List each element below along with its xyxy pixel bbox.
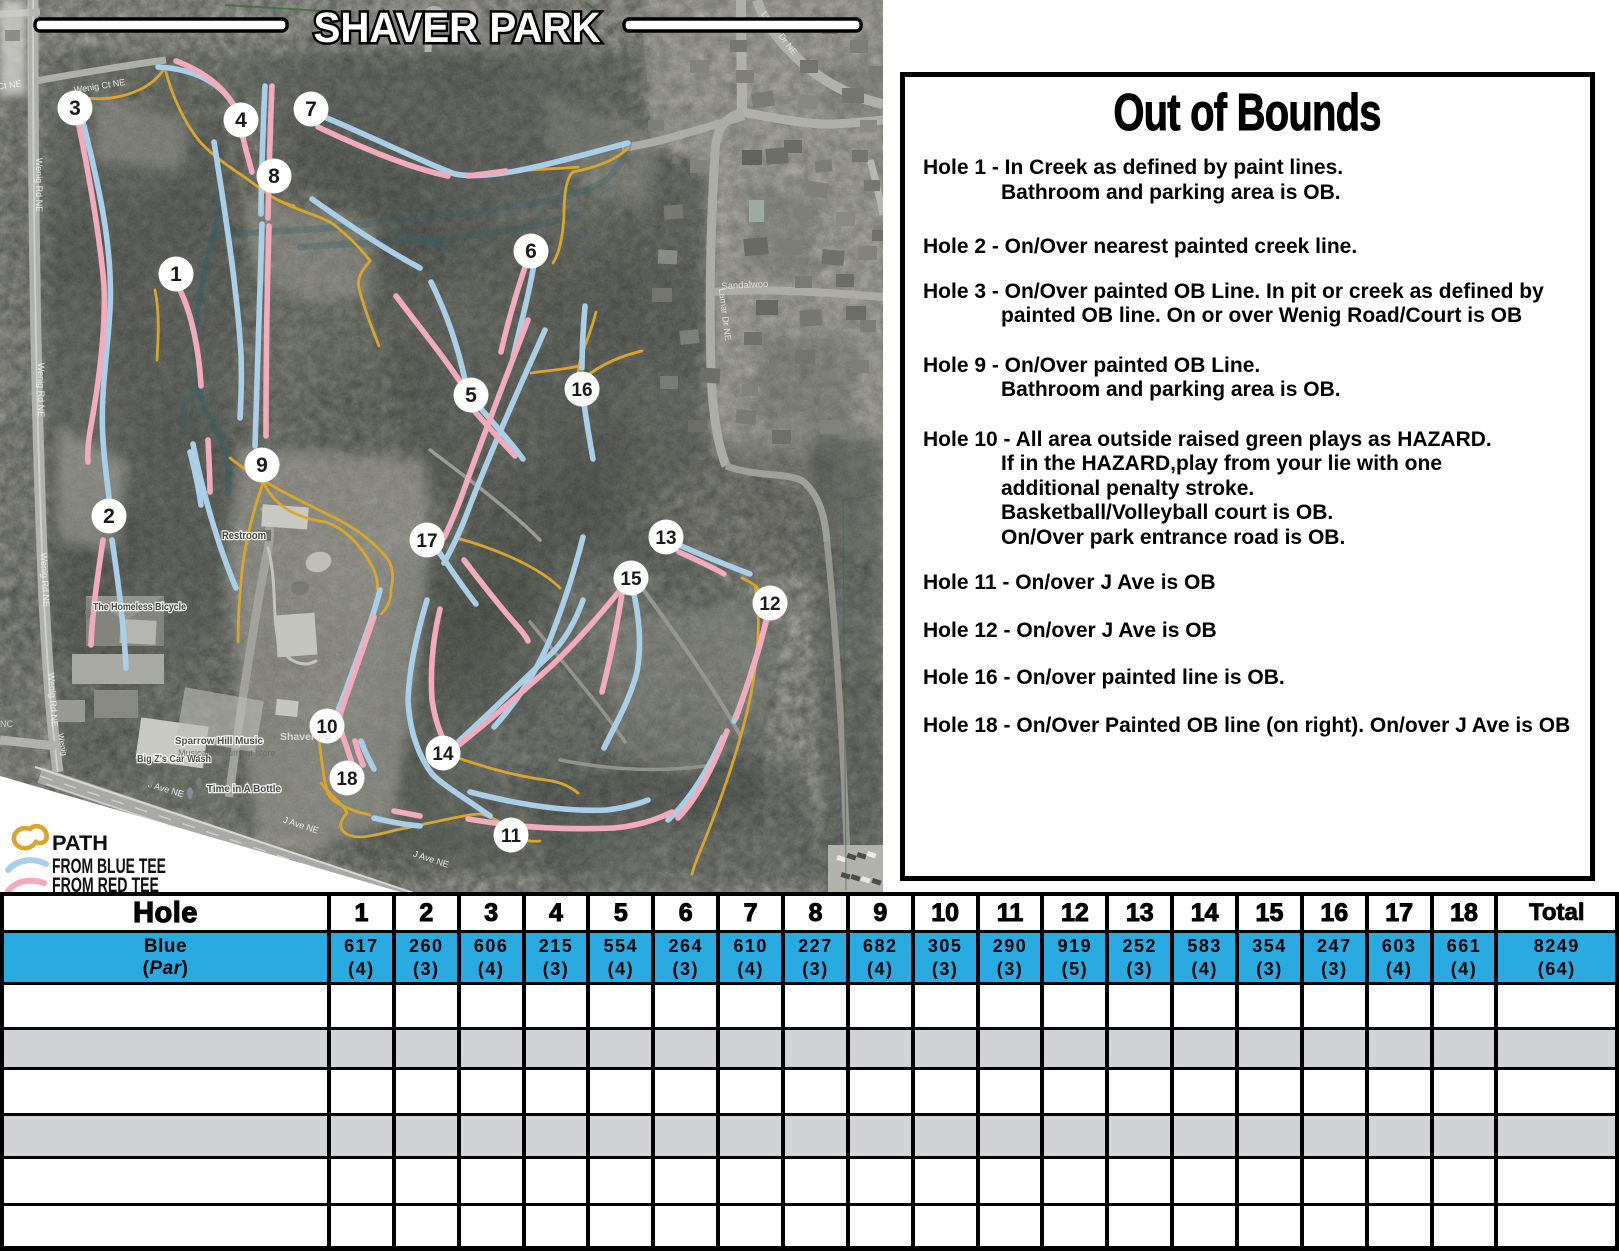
svg-text:8: 8	[268, 165, 280, 188]
svg-text:NC: NC	[0, 719, 13, 729]
svg-text:11: 11	[501, 826, 522, 847]
svg-text:16: 16	[571, 380, 592, 401]
svg-text:FROM RED TEE: FROM RED TEE	[52, 874, 159, 893]
svg-text:3: 3	[69, 97, 81, 120]
svg-text:Shaver Pa: Shaver Pa	[280, 731, 331, 743]
svg-text:12: 12	[759, 594, 780, 615]
svg-text:4: 4	[235, 109, 247, 132]
svg-text:1: 1	[170, 263, 182, 286]
svg-text:13: 13	[655, 528, 676, 549]
svg-text:PATH: PATH	[52, 832, 108, 855]
svg-text:18: 18	[336, 769, 357, 790]
svg-text:7: 7	[305, 98, 317, 121]
svg-text:Wenig Rd NE: Wenig Rd NE	[36, 363, 46, 417]
svg-text:The Homeless Bicycle: The Homeless Bicycle	[93, 601, 186, 613]
svg-text:Restroom: Restroom	[222, 530, 266, 542]
svg-text:Time in A Bottle: Time in A Bottle	[207, 783, 281, 795]
svg-text:SHAVER PARK: SHAVER PARK	[314, 5, 601, 52]
svg-text:Sparrow Hill Music: Sparrow Hill Music	[175, 735, 263, 747]
svg-text:9: 9	[256, 454, 268, 477]
svg-text:Wenig Rd NE: Wenig Rd NE	[34, 158, 44, 212]
svg-text:2: 2	[103, 505, 115, 528]
svg-text:5: 5	[465, 384, 477, 407]
svg-text:6: 6	[525, 240, 537, 263]
svg-text:14: 14	[432, 744, 454, 765]
svg-text:15: 15	[620, 569, 642, 590]
svg-text:Musical instrument store: Musical instrument store	[178, 748, 276, 758]
svg-text:17: 17	[416, 531, 437, 552]
